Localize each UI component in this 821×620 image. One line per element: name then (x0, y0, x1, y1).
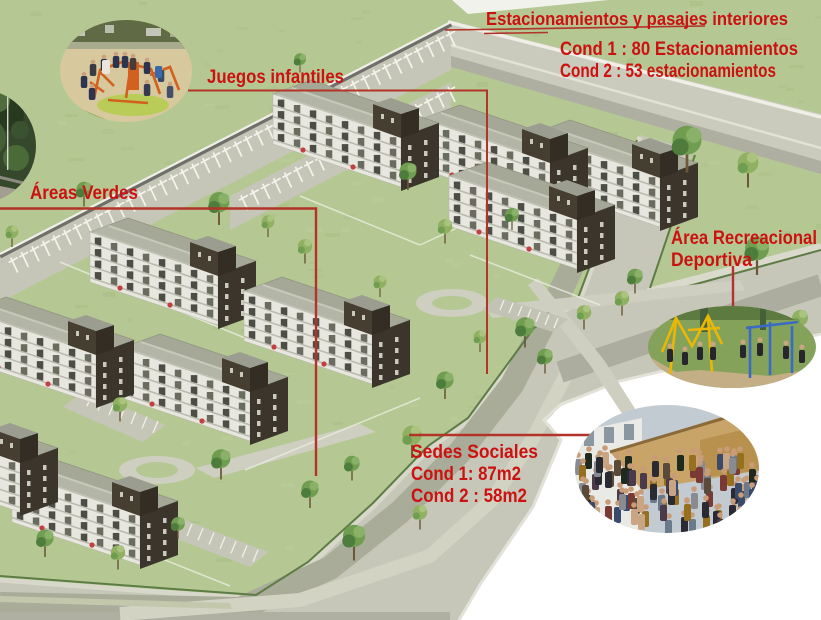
svg-text:Juegos infantiles: Juegos infantiles (207, 67, 344, 88)
svg-text:Sedes Sociales: Sedes Sociales (411, 441, 538, 463)
svg-text:Áreas Verdes: Áreas Verdes (30, 182, 138, 204)
svg-text:Área Recreacional: Área Recreacional (671, 227, 817, 249)
svg-text:Cond 2 : 58m2: Cond 2 : 58m2 (411, 485, 527, 507)
svg-text:Deportiva: Deportiva (671, 250, 752, 271)
svg-text:Cond 1 : 80 Estacionamientos: Cond 1 : 80 Estacionamientos (560, 38, 798, 60)
svg-text:Cond 2 : 53 estacionamientos: Cond 2 : 53 estacionamientos (560, 60, 776, 82)
svg-text:Cond 1: 87m2: Cond 1: 87m2 (411, 463, 521, 485)
svg-text:Estacionamientos y pasajes int: Estacionamientos y pasajes interiores (486, 8, 788, 29)
